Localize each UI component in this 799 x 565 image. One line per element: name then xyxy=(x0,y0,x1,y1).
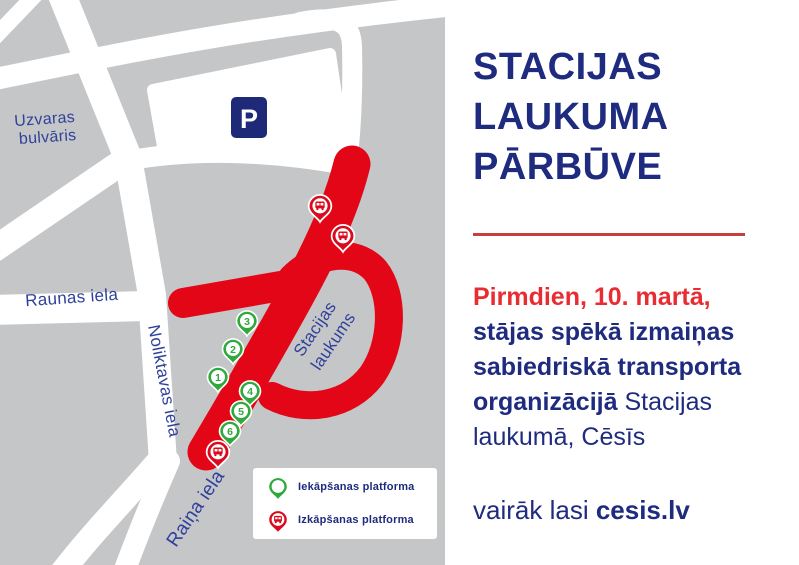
svg-text:1: 1 xyxy=(215,372,221,384)
announcement-line: laukumā, Cēsīs xyxy=(473,420,779,455)
divider-line xyxy=(473,233,745,236)
infographic-root: Uzvaras bulvāris Raunas iela Noliktavas … xyxy=(0,0,799,565)
dropoff-pin-icon xyxy=(266,505,290,535)
info-panel: STACIJAS LAUKUMA PĀRBŪVE Pirmdien, 10. m… xyxy=(445,0,799,565)
title-line: STACIJAS xyxy=(473,42,779,92)
map-legend: Iekāpšanas platforma Izkāpšanas platform… xyxy=(253,468,437,539)
legend-label: Izkāpšanas platforma xyxy=(298,514,414,526)
svg-text:6: 6 xyxy=(227,426,233,438)
website-link: cesis.lv xyxy=(596,495,690,525)
announcement-regular-tail: Stacijas xyxy=(618,388,712,416)
svg-text:5: 5 xyxy=(238,406,244,418)
title-line: LAUKUMA xyxy=(473,92,779,142)
title-line: PĀRBŪVE xyxy=(473,142,779,192)
page-title: STACIJAS LAUKUMA PĀRBŪVE xyxy=(473,42,779,192)
svg-text:3: 3 xyxy=(244,316,250,328)
parking-sign-letter: P xyxy=(240,104,258,134)
announcement-bold-word: organizācijā xyxy=(473,388,618,416)
more-info-line: vairāk lasi cesis.lv xyxy=(473,495,779,526)
svg-text:2: 2 xyxy=(230,344,236,356)
date-line: Pirmdien, 10. martā, xyxy=(473,280,779,315)
announcement-text: Pirmdien, 10. martā, stājas spēkā izmaiņ… xyxy=(473,280,779,455)
announcement-line: stājas spēkā izmaiņas xyxy=(473,315,779,350)
boarding-pin-icon xyxy=(266,472,290,502)
announcement-line: sabiedriskā transporta xyxy=(473,350,779,385)
parking-sign: P xyxy=(231,97,267,138)
svg-text:4: 4 xyxy=(247,386,253,398)
legend-item-boarding: Iekāpšanas platforma xyxy=(266,472,437,502)
more-info-prefix: vairāk lasi xyxy=(473,495,596,525)
announcement-line: organizācijā Stacijas xyxy=(473,385,779,420)
legend-item-dropoff: Izkāpšanas platforma xyxy=(266,505,437,535)
legend-label: Iekāpšanas platforma xyxy=(298,481,415,493)
